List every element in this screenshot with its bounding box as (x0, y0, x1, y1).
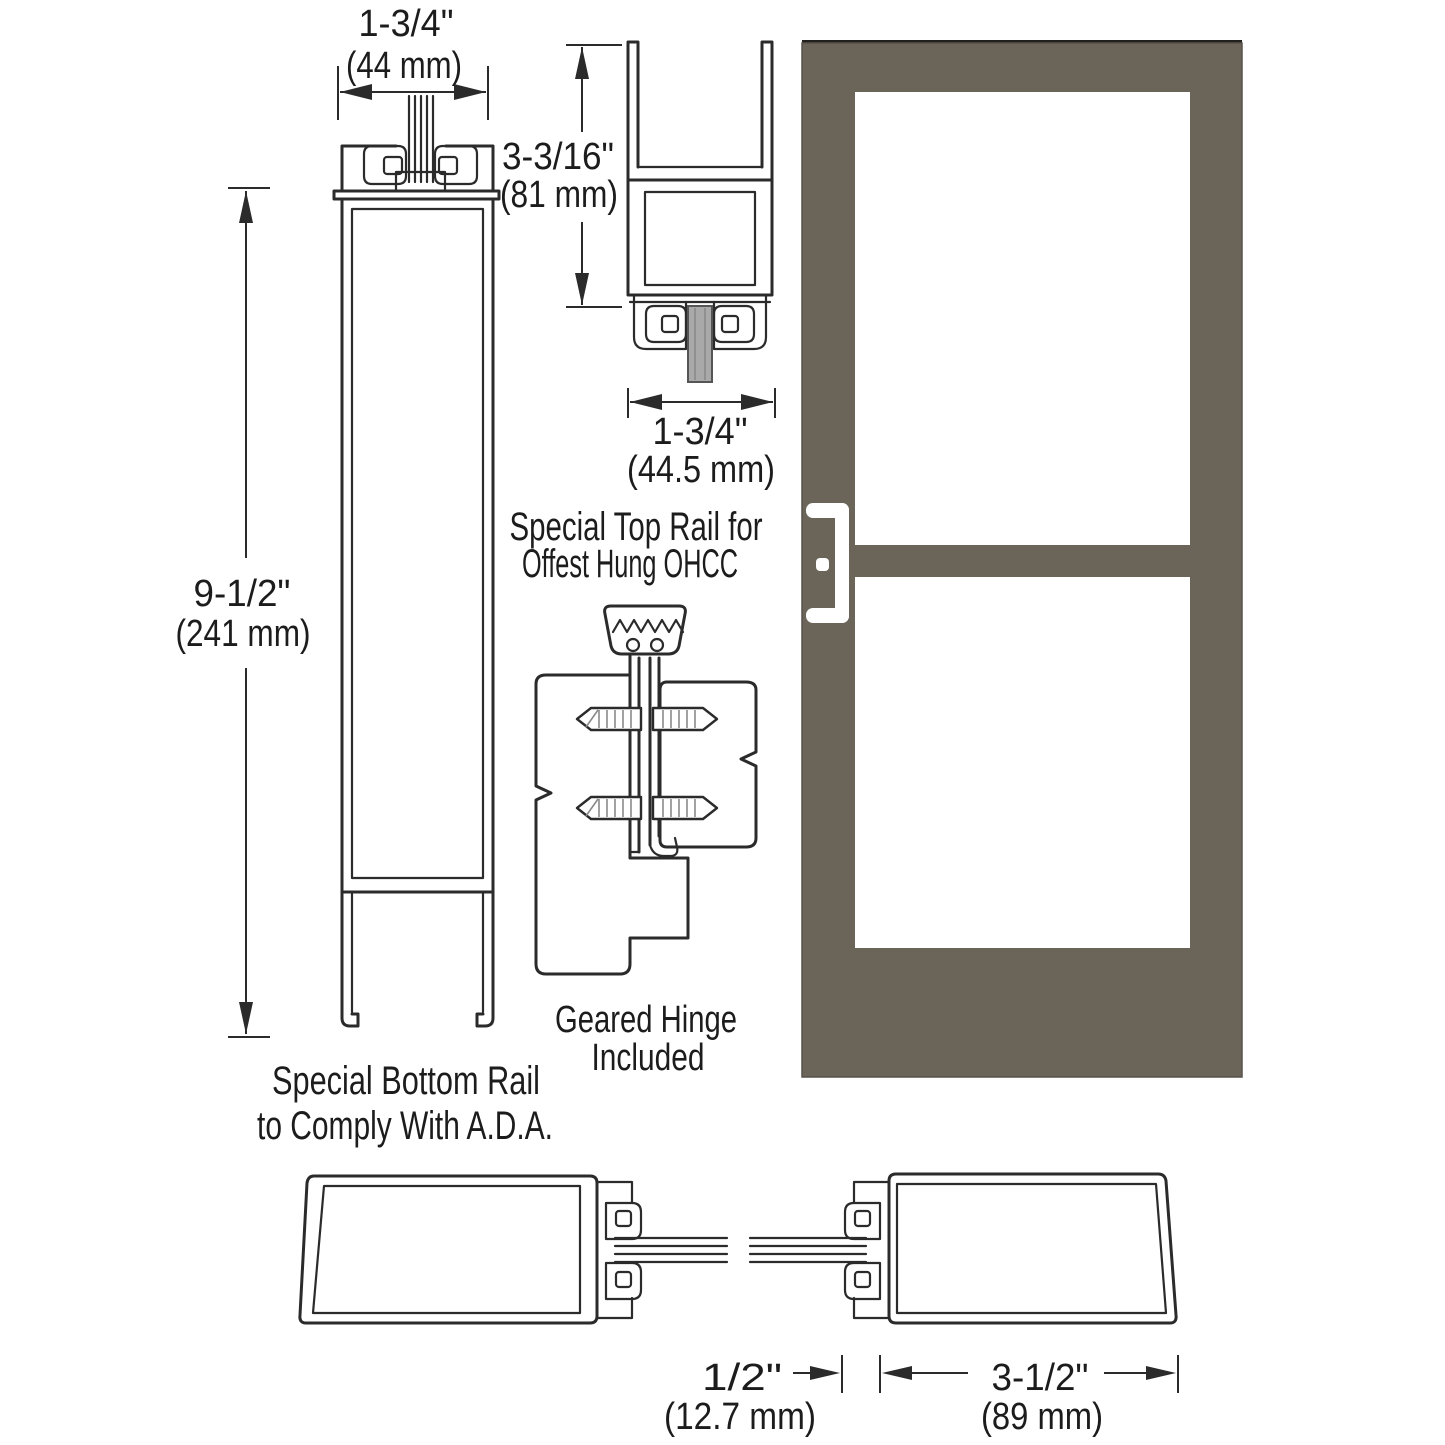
hinge-caption: Geared Hinge Included (555, 999, 737, 1079)
glass-panel-section (615, 1238, 866, 1262)
caption-line: Special Bottom Rail (272, 1059, 540, 1103)
glazing-gasket (606, 1263, 641, 1299)
arrowhead (1146, 1366, 1176, 1380)
arrowhead (575, 273, 589, 305)
arrowhead (741, 394, 773, 410)
glazing-gasket-core (855, 1272, 870, 1287)
right-stile-section (845, 1174, 1176, 1323)
dimension-text-mm: (241 mm) (176, 613, 311, 655)
rail-leg-right (477, 892, 493, 1026)
top-rail-height-dimension: 3-3/16" (81 mm) (500, 45, 622, 307)
door-technical-diagram: 1-3/4" (44 mm) 9-1/2" (241 mm) Special B… (0, 0, 1445, 1445)
top-rail-section (628, 42, 772, 382)
top-rail-width-dimension: 1-3/4" (44.5 mm) (627, 388, 775, 491)
left-jamb-section (300, 1176, 641, 1323)
dimension-text-inches: 1/2" (702, 1357, 782, 1399)
glazing-gasket-core (722, 316, 738, 332)
door-illustration (802, 40, 1242, 1077)
glass-section (688, 306, 712, 382)
rail-box-inner (352, 209, 483, 878)
bottom-rail-caption: Special Bottom Rail to Comply With A.D.A… (257, 1059, 553, 1148)
handle-grip-bar (835, 503, 849, 623)
arrowhead (882, 1366, 912, 1380)
door-glass-lower (855, 577, 1190, 948)
dimension-text-inches: 3-3/16" (502, 136, 614, 178)
arrowhead (575, 47, 589, 79)
arrowhead (239, 191, 253, 223)
caption-line: Included (592, 1037, 705, 1079)
caption-line: Geared Hinge (555, 999, 737, 1041)
rail-leg-left (342, 892, 358, 1026)
glazing-gasket (714, 306, 754, 342)
dimension-text-inches: 3-1/2" (992, 1357, 1089, 1399)
arrowhead (810, 1366, 840, 1380)
glazing-gasket-core (855, 1211, 870, 1226)
dimension-text-inches: 1-3/4" (359, 3, 454, 45)
dimension-text-mm: (44.5 mm) (627, 449, 775, 491)
jamb-outer (300, 1176, 597, 1323)
glass-gap-dimension: 1/2" (12.7 mm) (664, 1355, 880, 1438)
jamb-inner (313, 1186, 580, 1313)
glazing-gasket (845, 1263, 880, 1299)
geared-hinge-detail (536, 606, 756, 974)
rail-box-inner (645, 192, 755, 285)
door-glass-upper (855, 92, 1190, 545)
channel-wall-right (762, 42, 772, 182)
glass-edge-lines (409, 96, 433, 182)
dimension-text-inches: 1-3/4" (653, 411, 748, 453)
stile-width-dimension: 3-1/2" (89 mm) (882, 1355, 1178, 1438)
top-rail-caption: Special Top Rail for Offest Hung OHCC (510, 505, 763, 586)
rail-box-outer (628, 180, 772, 295)
hinge-frame-leaf-right (660, 682, 756, 847)
cylinder-lock (816, 558, 829, 571)
glazing-gasket (845, 1203, 880, 1239)
glazing-gasket-core (662, 316, 678, 332)
channel-wall-left (628, 42, 638, 182)
bottom-rail-width-dimension: 1-3/4" (44 mm) (338, 3, 488, 120)
dimension-text-mm: (89 mm) (981, 1396, 1103, 1438)
caption-line: Offest Hung OHCC (522, 542, 738, 586)
dimension-text-inches: 9-1/2" (194, 573, 291, 615)
stile-outer (889, 1174, 1176, 1323)
caption-line: to Comply With A.D.A. (257, 1104, 553, 1148)
glazing-gasket-core (616, 1272, 631, 1287)
glazing-gasket (646, 306, 686, 342)
glazing-gasket (606, 1203, 641, 1239)
hinge-gear-housing (605, 606, 686, 654)
arrowhead (239, 1002, 253, 1034)
glazing-gasket-core (616, 1211, 631, 1226)
bottom-rail-height-dimension: 9-1/2" (241 mm) (176, 188, 311, 1037)
stile-inner (897, 1184, 1166, 1313)
dimension-text-mm: (44 mm) (346, 45, 462, 87)
arrowhead (630, 394, 662, 410)
dimension-text-mm: (81 mm) (500, 174, 618, 216)
rail-box-outer (342, 199, 493, 892)
dimension-text-mm: (12.7 mm) (664, 1396, 816, 1438)
bottom-rail-section (334, 96, 499, 1026)
